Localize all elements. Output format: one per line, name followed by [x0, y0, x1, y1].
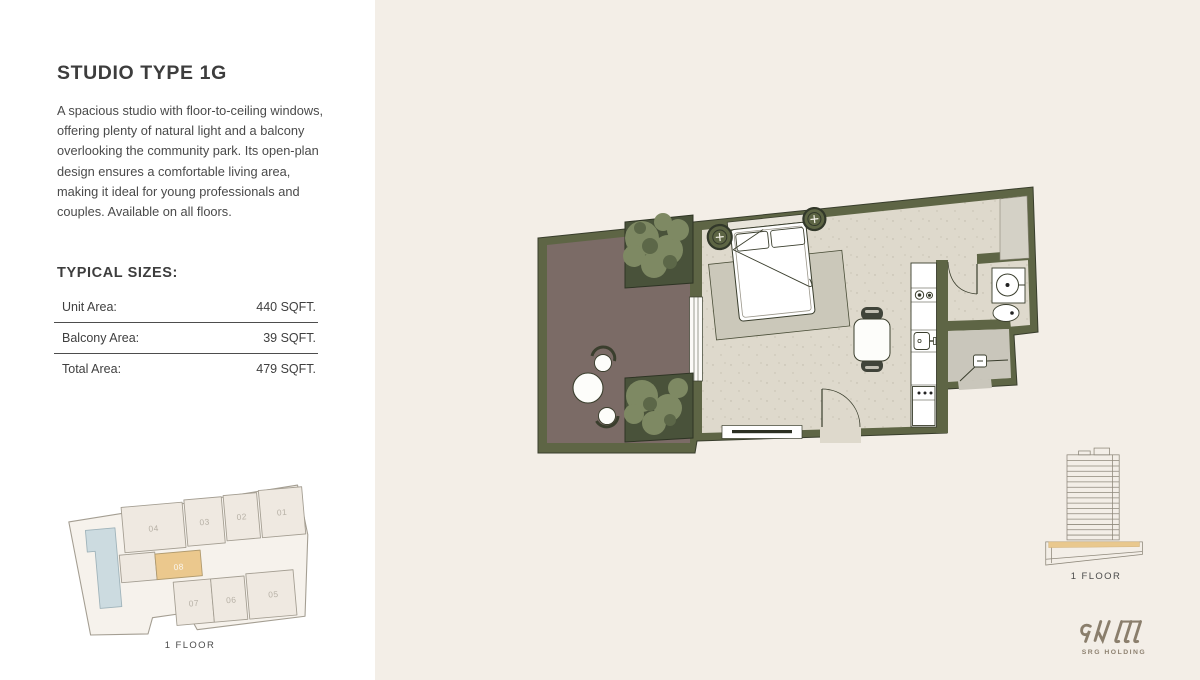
- unit-label-04: 04: [148, 523, 159, 534]
- planter-top: [623, 213, 693, 288]
- row-value: 39 SQFT.: [263, 331, 316, 345]
- building-elevation: [1038, 445, 1154, 571]
- highlighted-floor-band: [1049, 542, 1140, 548]
- page-title: STUDIO TYPE 1G: [57, 62, 227, 85]
- unit-label-01: 01: [276, 507, 287, 518]
- row-label: Unit Area:: [62, 300, 117, 314]
- brand-logo: [1078, 616, 1150, 646]
- row-label: Total Area:: [62, 362, 121, 376]
- typical-sizes-heading: TYPICAL SIZES:: [57, 265, 178, 281]
- elevation-floor-label: 1 FLOOR: [1038, 571, 1154, 582]
- unit-label-06: 06: [226, 594, 237, 605]
- key-plan-floor-label: 1 FLOOR: [60, 640, 320, 651]
- unit-label-03: 03: [199, 517, 210, 528]
- bedside-plant: [802, 207, 826, 231]
- bedside-plant: [707, 224, 733, 250]
- row-label: Balcony Area:: [62, 331, 139, 345]
- unit-label-07: 07: [188, 598, 199, 609]
- planter-bottom: [624, 373, 693, 442]
- table-row: Total Area: 479 SQFT.: [54, 354, 318, 384]
- tower: [1067, 455, 1119, 540]
- table-row: Balcony Area: 39 SQFT.: [54, 323, 318, 354]
- kitchen-side-wall: [936, 260, 948, 433]
- table-row: Unit Area: 440 SQFT.: [54, 292, 318, 323]
- unit-label-02: 02: [236, 511, 247, 522]
- kitchen: [911, 263, 937, 427]
- pillow: [770, 227, 805, 247]
- tv-niche: [722, 426, 802, 439]
- brochure-page: STUDIO TYPE 1G A spacious studio with fl…: [0, 0, 1200, 680]
- basin: [992, 268, 1025, 303]
- sizes-table: Unit Area: 440 SQFT. Balcony Area: 39 SQ…: [54, 292, 318, 384]
- sliding-door: [690, 297, 703, 381]
- unit-label-08: 08: [173, 561, 184, 572]
- unit-label-05: 05: [268, 589, 279, 600]
- logo-loop: [1082, 625, 1091, 641]
- brand-name: SRG HOLDING: [1066, 649, 1162, 656]
- pillow: [736, 231, 770, 251]
- closet: [1000, 196, 1029, 260]
- toilet: [993, 305, 1019, 322]
- row-value: 479 SQFT.: [256, 362, 316, 376]
- core-cell: [119, 552, 157, 583]
- dining-table: [854, 319, 890, 361]
- key-plan: 04 03 02 01 08 07 06 05: [60, 482, 320, 638]
- washer: [913, 387, 936, 426]
- row-value: 440 SQFT.: [256, 300, 316, 314]
- floor-plan: [530, 180, 1050, 460]
- unit-description: A spacious studio with floor-to-ceiling …: [57, 101, 325, 222]
